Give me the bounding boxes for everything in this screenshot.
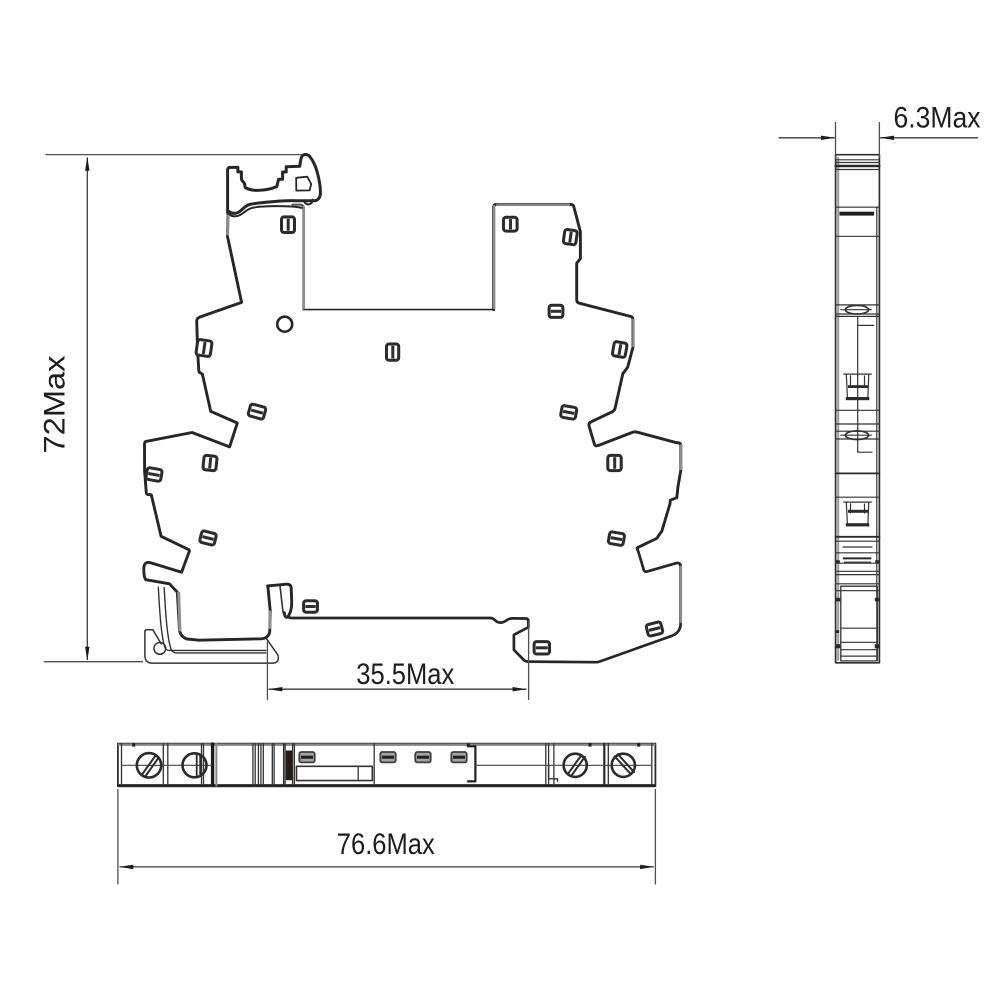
svg-text:76.6Max: 76.6Max	[337, 828, 435, 861]
svg-text:72Max: 72Max	[39, 356, 72, 454]
svg-text:6.3Max: 6.3Max	[894, 102, 981, 135]
svg-text:35.5Max: 35.5Max	[356, 658, 454, 691]
